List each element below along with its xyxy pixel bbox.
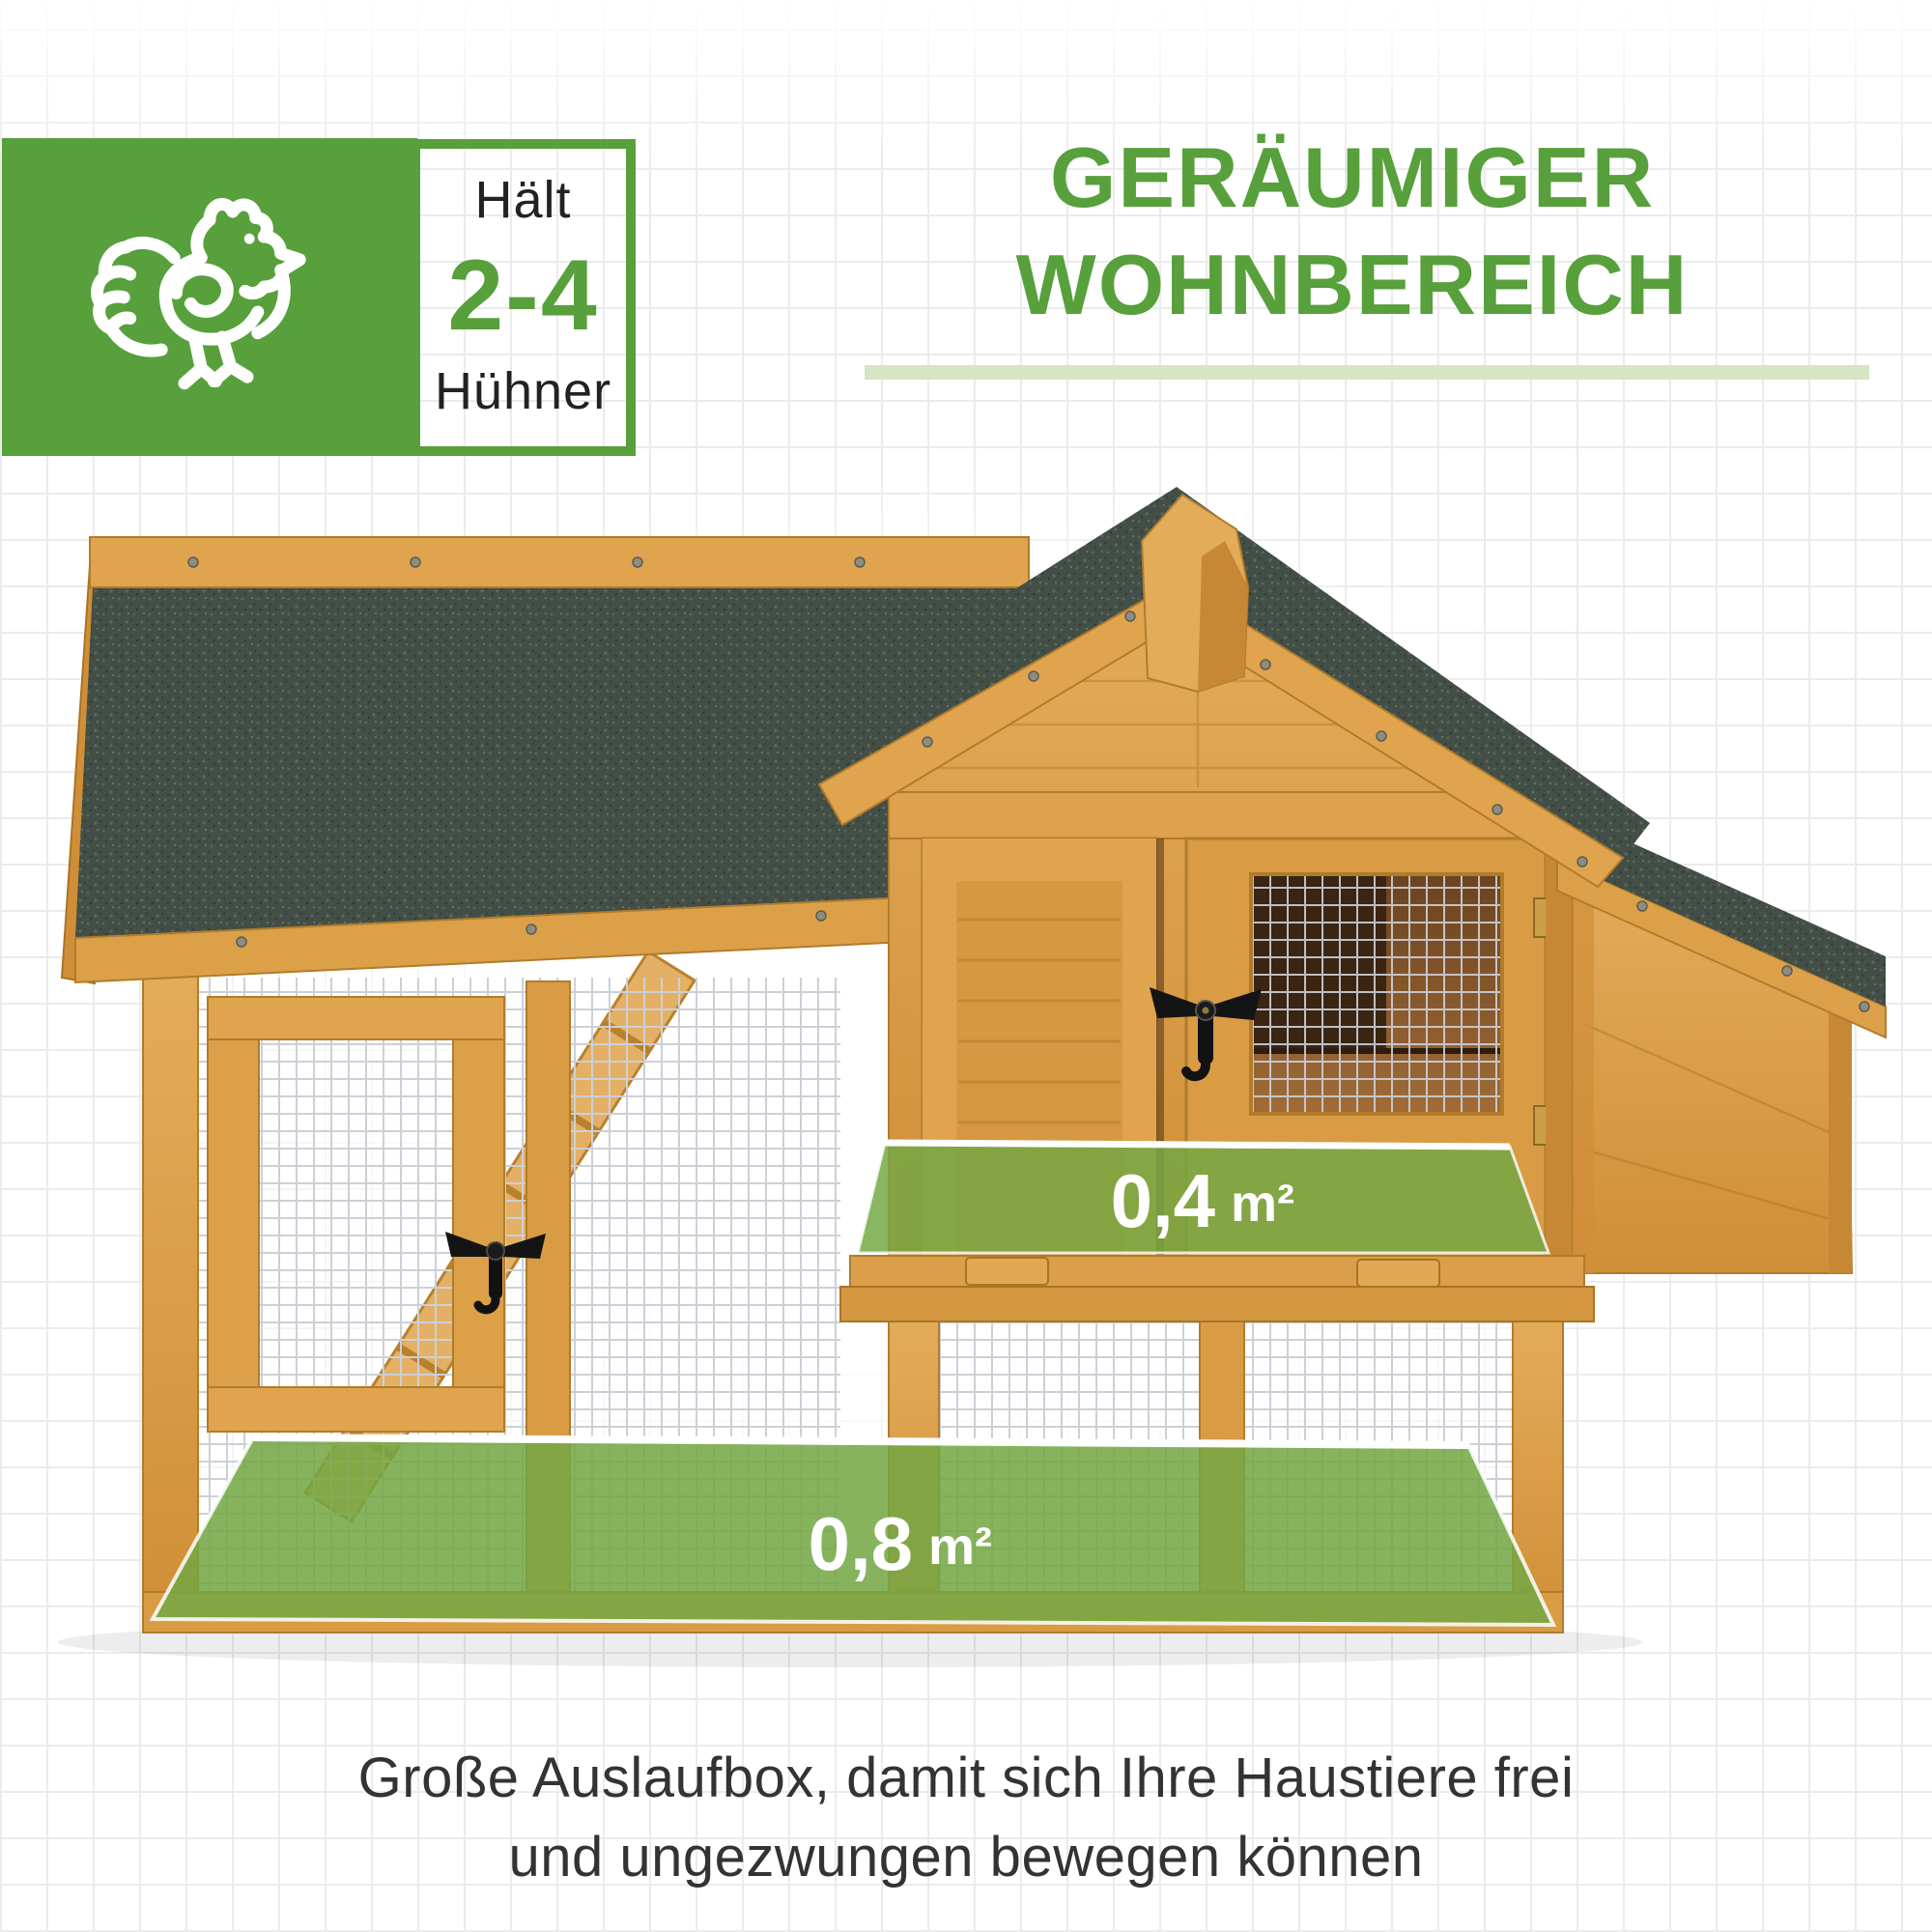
house-area-value: 0,4 xyxy=(1111,1158,1215,1243)
nest-box xyxy=(1557,810,1886,1273)
house-area-unit: m² xyxy=(1231,1175,1294,1233)
chicken-coop-illustration: 0,4 m² 0,8 m² xyxy=(0,0,1932,1932)
house-area-overlay: 0,4 m² xyxy=(858,1143,1548,1253)
roof-finial xyxy=(1142,495,1248,692)
tray-handle-left xyxy=(966,1258,1048,1285)
caption: Große Auslaufbox, damit sich Ihre Hausti… xyxy=(0,1739,1932,1897)
caption-line1: Große Auslaufbox, damit sich Ihre Hausti… xyxy=(0,1739,1932,1818)
caption-line2: und ungezwungen bewegen können xyxy=(0,1818,1932,1897)
run-area-unit: m² xyxy=(928,1518,992,1576)
droppings-tray xyxy=(840,1256,1594,1321)
tray-handle-right xyxy=(1357,1260,1439,1287)
run-area-overlay: 0,8 m² xyxy=(153,1437,1553,1625)
run-area-value: 0,8 xyxy=(809,1501,913,1586)
product-infographic: Hält 2-4 Hühner GERÄUMIGER WOHNBEREICH xyxy=(0,0,1932,1932)
